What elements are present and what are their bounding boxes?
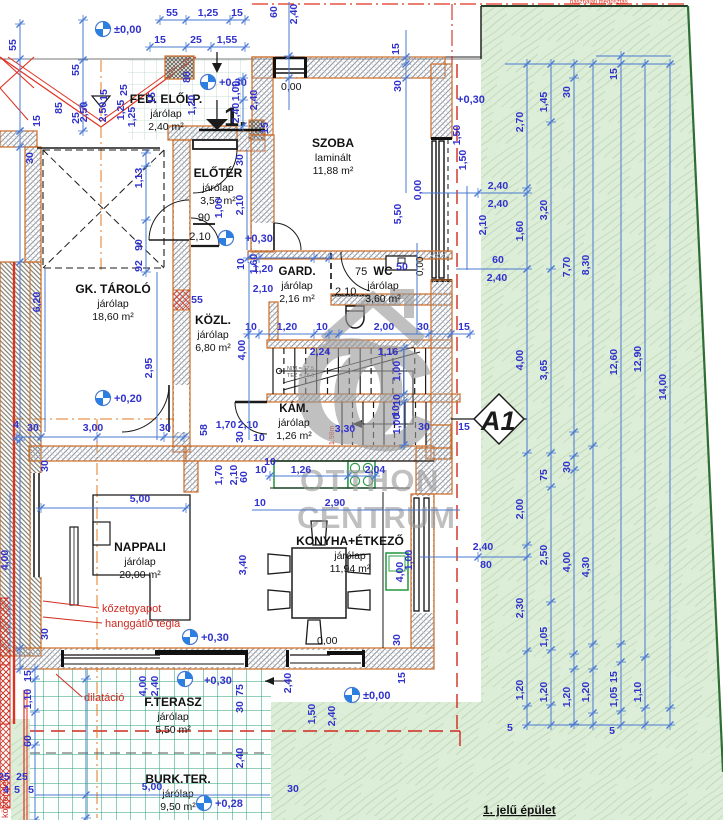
svg-text:3,20: 3,20 (538, 200, 550, 221)
svg-text:10: 10 (245, 321, 257, 333)
svg-text:25: 25 (118, 84, 130, 96)
svg-text:C: C (328, 314, 436, 482)
svg-text:KÁM.: KÁM. (279, 402, 308, 415)
svg-text:1,70: 1,70 (216, 419, 237, 431)
svg-text:2,70: 2,70 (514, 112, 526, 133)
svg-text:4,00: 4,00 (137, 676, 149, 697)
svg-text:10: 10 (235, 258, 247, 270)
svg-text:55: 55 (70, 64, 82, 76)
svg-text:2,40: 2,40 (282, 673, 294, 694)
svg-text:1. jelű épület: 1. jelű épület (483, 803, 556, 817)
svg-text:1,60: 1,60 (248, 254, 260, 275)
svg-text:15: 15 (154, 34, 166, 46)
svg-text:55: 55 (191, 294, 203, 306)
svg-text:járólap: járólap (161, 788, 194, 800)
svg-text:4,00: 4,00 (0, 550, 11, 571)
svg-text:4,00: 4,00 (514, 350, 526, 371)
svg-text:30: 30 (417, 321, 429, 333)
svg-text:75: 75 (234, 684, 246, 696)
svg-text:10: 10 (253, 432, 265, 444)
svg-text:1,45: 1,45 (538, 92, 550, 113)
svg-text:+0,30: +0,30 (204, 675, 232, 687)
svg-text:80: 80 (181, 71, 193, 83)
svg-text:±0,00: ±0,00 (114, 24, 141, 36)
svg-text:NAPPALI: NAPPALI (114, 540, 166, 554)
svg-text:30: 30 (234, 431, 246, 443)
svg-text:1,20: 1,20 (580, 682, 592, 703)
svg-text:30: 30 (287, 783, 299, 795)
svg-text:11,94 m²: 11,94 m² (330, 563, 371, 575)
svg-text:25: 25 (16, 771, 28, 783)
svg-text:1,26 m²: 1,26 m² (276, 430, 312, 442)
svg-text:2,40: 2,40 (230, 103, 242, 124)
svg-text:25: 25 (0, 771, 10, 783)
svg-text:1,60: 1,60 (514, 221, 526, 242)
svg-text:2,10: 2,10 (189, 231, 210, 243)
svg-text:3,30: 3,30 (335, 423, 356, 435)
svg-text:2,10: 2,10 (238, 419, 259, 431)
svg-text:9,50 m²: 9,50 m² (160, 801, 196, 813)
svg-text:50: 50 (396, 261, 408, 273)
svg-text:+0,30: +0,30 (245, 233, 273, 245)
svg-text:5,00: 5,00 (142, 781, 163, 793)
svg-text:30: 30 (561, 461, 573, 473)
svg-text:járólap: járólap (156, 711, 189, 723)
svg-text:GK. TÁROLÓ: GK. TÁROLÓ (75, 281, 150, 296)
svg-text:4,00: 4,00 (236, 340, 248, 361)
svg-text:85: 85 (53, 102, 65, 114)
svg-text:járólap: járólap (123, 556, 156, 568)
svg-text:járólap: járólap (201, 182, 234, 194)
svg-text:járólap: járólap (96, 298, 129, 310)
svg-text:2,40: 2,40 (326, 706, 338, 727)
svg-text:1,20: 1,20 (538, 682, 550, 703)
svg-text:1,55: 1,55 (217, 34, 238, 46)
svg-text:1,00: 1,00 (391, 361, 403, 382)
svg-text:GARD.: GARD. (278, 266, 315, 278)
svg-text:15: 15 (608, 671, 620, 683)
svg-text:30: 30 (24, 152, 36, 164)
svg-text:2,10: 2,10 (234, 195, 246, 216)
svg-text:2,10: 2,10 (477, 215, 489, 236)
svg-text:CENTRUM: CENTRUM (297, 500, 456, 535)
svg-text:10: 10 (255, 464, 267, 476)
svg-text:2,40: 2,40 (487, 272, 508, 284)
svg-text:2,04: 2,04 (365, 464, 386, 476)
svg-text:2,40: 2,40 (234, 748, 246, 769)
svg-text:1,20: 1,20 (514, 680, 526, 701)
svg-text:10: 10 (254, 497, 266, 509)
svg-text:2,40 m²: 2,40 m² (148, 121, 184, 133)
svg-text:1,70: 1,70 (213, 465, 225, 486)
svg-text:4: 4 (3, 784, 9, 796)
svg-text:SZOBA: SZOBA (312, 136, 354, 150)
svg-text:A1: A1 (480, 406, 516, 436)
svg-text:2,10: 2,10 (335, 286, 356, 298)
svg-text:5: 5 (14, 784, 20, 796)
svg-text:3,65: 3,65 (538, 360, 550, 381)
svg-text:30: 30 (27, 422, 39, 434)
svg-text:10: 10 (316, 321, 328, 333)
svg-text:30: 30 (561, 86, 573, 98)
svg-text:30: 30 (418, 421, 430, 433)
svg-text:5,00: 5,00 (130, 493, 151, 505)
svg-text:30: 30 (391, 634, 403, 646)
svg-text:1,50: 1,50 (451, 125, 463, 146)
svg-text:1,20: 1,20 (561, 687, 573, 708)
svg-text:2,40: 2,40 (473, 541, 494, 553)
svg-text:2,16 m²: 2,16 m² (279, 293, 315, 305)
svg-text:0,00: 0,00 (317, 635, 338, 647)
svg-text:15: 15 (98, 89, 110, 101)
svg-text:2,24: 2,24 (310, 346, 331, 358)
svg-text:55: 55 (7, 39, 19, 51)
svg-text:12,60: 12,60 (608, 349, 620, 375)
svg-text:60: 60 (238, 471, 250, 483)
svg-text:5: 5 (609, 725, 615, 737)
svg-text:1,13: 1,13 (133, 168, 145, 189)
svg-text:10: 10 (391, 394, 403, 406)
svg-text:5: 5 (507, 722, 513, 734)
svg-text:1,50: 1,50 (457, 150, 469, 171)
svg-text:1,10: 1,10 (22, 689, 34, 710)
svg-text:75: 75 (355, 266, 367, 278)
svg-text:dilatáció: dilatáció (84, 692, 124, 704)
svg-text:6,20: 6,20 (31, 292, 43, 313)
svg-text:4,00: 4,00 (561, 552, 573, 573)
svg-text:15: 15 (259, 122, 271, 134)
svg-text:60: 60 (492, 254, 504, 266)
svg-text:5,50: 5,50 (392, 204, 404, 225)
svg-text:1,25: 1,25 (198, 7, 219, 19)
svg-text:3,60 m²: 3,60 m² (365, 293, 401, 305)
svg-text:1,25: 1,25 (126, 107, 138, 128)
svg-text:5,50 m²: 5,50 m² (155, 724, 191, 736)
svg-text:járólap: járólap (280, 280, 313, 292)
svg-text:2,40: 2,40 (488, 198, 509, 210)
svg-text:KONYHA+ÉTKEZŐ: KONYHA+ÉTKEZŐ (296, 533, 404, 548)
svg-text:15: 15 (608, 68, 620, 80)
svg-text:ELŐTÉR: ELŐTÉR (194, 165, 243, 180)
svg-text:8,30: 8,30 (580, 255, 592, 276)
svg-text:0,00: 0,00 (412, 180, 424, 201)
svg-text:+0,20: +0,20 (114, 393, 142, 405)
svg-text:75: 75 (538, 469, 550, 481)
svg-text:1,00: 1,00 (230, 81, 242, 102)
svg-text:2,90: 2,90 (325, 497, 346, 509)
svg-text:12,90: 12,90 (632, 346, 644, 372)
svg-text:4: 4 (13, 419, 19, 431)
svg-text:80: 80 (480, 559, 492, 571)
svg-text:2,50: 2,50 (538, 545, 550, 566)
svg-text:30: 30 (234, 154, 246, 166)
svg-text:±0,00: ±0,00 (363, 690, 390, 702)
svg-text:hanggátló tégla: hanggátló tégla (105, 618, 181, 630)
svg-text:2,95: 2,95 (143, 358, 155, 379)
svg-text:20,00 m²: 20,00 m² (119, 569, 161, 581)
svg-text:5: 5 (28, 784, 34, 796)
svg-text:+0,30: +0,30 (201, 632, 229, 644)
svg-text:4,30: 4,30 (580, 557, 592, 578)
svg-text:2,50: 2,50 (78, 102, 90, 123)
svg-text:3,00: 3,00 (83, 422, 104, 434)
svg-text:3,40: 3,40 (237, 555, 249, 576)
svg-text:90: 90 (198, 212, 210, 224)
svg-text:30: 30 (159, 422, 171, 434)
svg-text:60: 60 (22, 735, 34, 747)
svg-text:15: 15 (458, 421, 470, 433)
svg-text:15: 15 (146, 92, 158, 104)
svg-text:2,00: 2,00 (514, 499, 526, 520)
svg-text:90: 90 (133, 239, 145, 251)
svg-text:1,10: 1,10 (632, 682, 644, 703)
svg-text:60: 60 (268, 6, 280, 18)
svg-text:1,00: 1,00 (213, 198, 225, 219)
svg-text:2,50: 2,50 (97, 102, 109, 123)
svg-text:30: 30 (392, 80, 404, 92)
svg-text:1,00: 1,00 (403, 550, 415, 571)
svg-text:1,26: 1,26 (291, 464, 312, 476)
svg-text:2,40: 2,40 (288, 4, 300, 25)
svg-text:14,00: 14,00 (657, 374, 669, 400)
svg-text:15: 15 (396, 672, 408, 684)
svg-text:0,00: 0,00 (281, 81, 302, 93)
svg-text:kőzetgyapot: kőzetgyapot (102, 603, 161, 615)
svg-text:járólap: járólap (149, 108, 182, 120)
svg-text:30: 30 (39, 628, 51, 640)
svg-text:2,30: 2,30 (514, 598, 526, 619)
svg-text:7,70: 7,70 (561, 257, 573, 278)
svg-text:használati megosztás: használati megosztás (570, 0, 628, 6)
svg-text:1,05: 1,05 (538, 627, 550, 648)
svg-text:15: 15 (22, 670, 34, 682)
svg-text:1,05: 1,05 (608, 687, 620, 708)
svg-text:30: 30 (39, 460, 51, 472)
svg-text:58: 58 (198, 424, 210, 436)
svg-text:15: 15 (231, 7, 243, 19)
svg-text:WC: WC (373, 266, 392, 278)
svg-text:1,50: 1,50 (306, 704, 318, 725)
svg-text:2,40: 2,40 (248, 90, 260, 111)
svg-text:1,20: 1,20 (186, 95, 198, 116)
svg-text:25: 25 (190, 34, 202, 46)
svg-text:2,00: 2,00 (374, 321, 395, 333)
svg-text:10: 10 (390, 405, 402, 417)
svg-text:11,88 m²: 11,88 m² (313, 165, 354, 177)
svg-text:1,20: 1,20 (277, 321, 298, 333)
svg-text:KÖZL.: KÖZL. (195, 312, 231, 327)
svg-text:+0,28: +0,28 (215, 798, 243, 810)
svg-text:járólap: járólap (333, 550, 366, 562)
svg-text:laminált: laminált (315, 152, 351, 164)
svg-text:2,40: 2,40 (488, 180, 509, 192)
svg-text:járólap: járólap (366, 280, 399, 292)
svg-text:15: 15 (458, 321, 470, 333)
svg-text:15: 15 (31, 115, 43, 127)
svg-text:+0,30: +0,30 (457, 94, 485, 106)
svg-text:járólap: járólap (277, 417, 310, 429)
svg-text:2,40: 2,40 (149, 676, 161, 697)
svg-text:30: 30 (234, 701, 246, 713)
svg-text:55: 55 (166, 7, 178, 19)
svg-text:15: 15 (390, 43, 402, 55)
svg-text:18,60 m²: 18,60 m² (92, 311, 134, 323)
svg-text:6,80 m²: 6,80 m² (195, 342, 231, 354)
svg-text:1,16: 1,16 (378, 346, 399, 358)
svg-text:2,10: 2,10 (253, 283, 274, 295)
svg-text:járólap: járólap (196, 329, 229, 341)
svg-text:92: 92 (133, 260, 145, 272)
